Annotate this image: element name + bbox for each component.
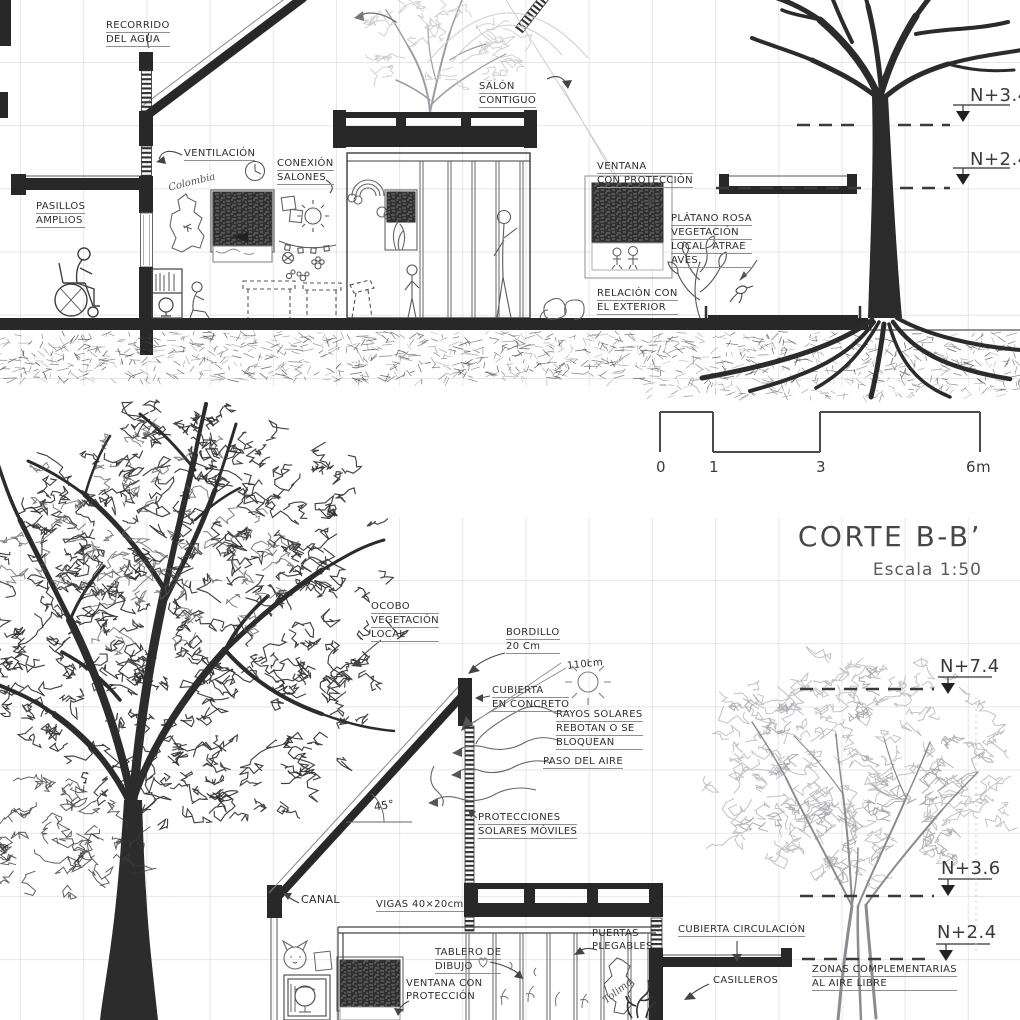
shelf-globe-sketch <box>284 975 330 1020</box>
bottom-section-structure <box>267 640 792 1020</box>
label-bordillo: BORDILLO20 Cm <box>506 626 560 654</box>
airflow-wavy-lines <box>431 706 560 806</box>
scalebar-tick-0: 0 <box>656 458 666 478</box>
label-recorrido-del-agua: RECORRIDODEL AGUA <box>106 19 170 47</box>
annotation-arrows-top <box>148 32 658 206</box>
label-puertas-plegables: PUERTASPLEGABLES <box>592 927 653 953</box>
plant-hummingbird-sketch <box>668 236 757 318</box>
sun-doodle-icon <box>297 200 329 232</box>
sitting-person-sketch <box>190 282 209 318</box>
annotation-arrows-bottom <box>283 640 742 1016</box>
label-conexion-salones: CONEXIÓNSALONES <box>277 157 334 185</box>
label-level-n24-bottom: N+2.4 <box>937 921 997 944</box>
architectural-section-sheet: RECORRIDODEL AGUAVENTILACIÓNCONEXIÓNSALO… <box>0 0 1020 1020</box>
label-angulo-45: 45° <box>373 797 396 815</box>
label-salon-contiguo: SALÓNCONTIGUO <box>479 80 536 108</box>
label-cubierta-circulacion: CUBIERTA CIRCULACIÓN <box>678 923 805 937</box>
label-protecciones-solares: PROTECCIONESSOLARES MÓVILES <box>478 811 577 839</box>
chalkboard-sketch <box>211 190 274 262</box>
bookshelf-sketch <box>152 269 182 318</box>
cat-face-doodle <box>283 941 307 969</box>
label-casilleros: CASILLEROS <box>713 974 778 987</box>
label-level-n36: N+3.6 <box>941 857 1001 880</box>
bunting-garland-sketch <box>279 241 336 253</box>
drawing-title: CORTE B-B’ <box>798 520 982 553</box>
standing-person-sketch <box>494 211 517 319</box>
rainbow-doodle <box>348 180 392 219</box>
small-chalkboard-sketch <box>385 190 417 250</box>
ball-icon <box>283 253 294 264</box>
label-110cm: 110cm <box>566 656 603 673</box>
label-canal: CANAL <box>301 893 340 907</box>
hummingbird-icon <box>730 286 753 303</box>
flower-doodles <box>286 257 324 281</box>
section-drawing <box>0 0 1020 1020</box>
tree-ocobo-large <box>0 400 408 1020</box>
colombia-map-sketch <box>170 194 204 252</box>
annotation-layer: RECORRIDODEL AGUAVENTILACIÓNCONEXIÓNSALO… <box>0 0 1020 1020</box>
label-level-n24-top: N+2.4 <box>970 148 1020 171</box>
label-rayos-solares: RAYOS SOLARESREBOTAN O SEBLOQUEAN <box>556 708 643 750</box>
sun-icon <box>565 659 611 705</box>
interior-sketch-tree <box>354 0 532 112</box>
elevation-markers-bottom <box>800 677 992 961</box>
graphic-scale-bar <box>660 412 980 452</box>
tree-section-top <box>702 0 1020 397</box>
scalebar-tick-3: 3 <box>816 458 826 478</box>
label-vigas: VIGAS 40×20cm <box>376 898 464 912</box>
tables-dashed-sketch <box>243 280 374 318</box>
label-paso-del-aire: PASO DEL AIRE <box>543 755 623 769</box>
label-tolima: Tolima <box>601 976 636 1007</box>
scalebar-tick-6m: 6m <box>966 458 991 478</box>
elevation-markers-top <box>716 105 1010 188</box>
label-pasillos-amplios: PASILLOSAMPLIOS <box>36 200 85 228</box>
wheelchair-person-sketch <box>55 248 100 317</box>
label-ocobo: OCOBOVEGETACIÓNLOCAL <box>371 600 439 642</box>
standing-child-sketch <box>405 265 419 318</box>
bushes-sketch <box>540 298 584 319</box>
drawing-scale-note: Escala 1:50 <box>873 560 982 580</box>
ground-hatch <box>0 331 1020 402</box>
label-level-n34: N+3.4 <box>970 84 1020 107</box>
scalebar-tick-1: 1 <box>709 458 719 478</box>
label-zonas-complementarias: ZONAS COMPLEMENTARIASAL AIRE LIBRE <box>812 963 957 991</box>
label-colombia: Colombia <box>167 170 217 194</box>
label-cubierta-en-concreto: CUBIERTAEN CONCRETO <box>492 684 569 712</box>
kids-at-window-sketch <box>612 247 638 270</box>
tolima-map-sketch <box>604 958 634 1014</box>
graph-grid-top <box>0 0 1020 386</box>
graph-grid-bottom <box>0 518 1020 1020</box>
clock-icon <box>246 162 265 181</box>
dark-plant-sketch <box>626 980 656 1018</box>
tree-pencil-sketch <box>702 646 1017 1020</box>
interior-doodles <box>55 32 757 319</box>
door-panel-doodles <box>479 958 588 1008</box>
label-relacion-con-el-exterior: RELACIÓN CONEL EXTERIOR <box>597 287 678 315</box>
top-section-structure <box>0 0 1020 355</box>
label-ventilacion: VENTILACIÓN <box>184 147 255 161</box>
label-ventana-con-proteccion-bottom: VENTANA CONPROTECCIÓN <box>406 977 483 1003</box>
label-level-n74: N+7.4 <box>940 655 1000 678</box>
label-tablero-de-dibujo: TABLERO DEDIBUJO <box>435 946 501 974</box>
label-ventana-con-proteccion-top: VENTANACON PROTECCIÓN <box>597 160 693 188</box>
label-platano-rosa: PLÁTANO ROSAVEGETACIÓNLOCAL ATRAEAVES. <box>671 212 752 268</box>
